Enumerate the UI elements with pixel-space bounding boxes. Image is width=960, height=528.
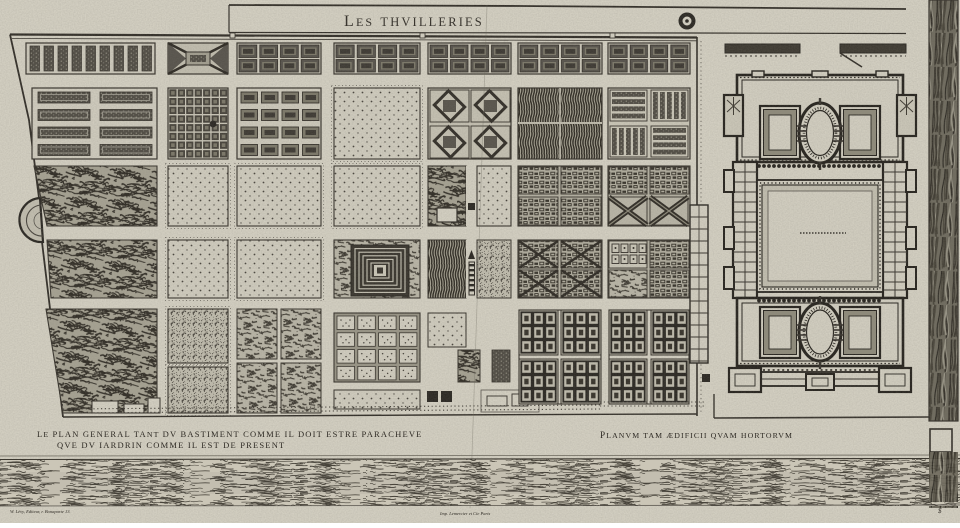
svg-text:QVE DV IARDRIN COMME IL EST DE: QVE DV IARDRIN COMME IL EST DE PRESENT — [57, 440, 285, 450]
svg-text:PLANVM TAM ÆDIFICII QVAM HORTO: PLANVM TAM ÆDIFICII QVAM HORTORVM — [600, 430, 793, 440]
svg-text:$: $ — [938, 507, 942, 515]
svg-text:Imp. Lemercier et Cie Paris: Imp. Lemercier et Cie Paris — [439, 511, 490, 516]
svg-text:LE PLAN GENERAL TANT DV BASTIM: LE PLAN GENERAL TANT DV BASTIMENT COMME … — [37, 429, 423, 439]
